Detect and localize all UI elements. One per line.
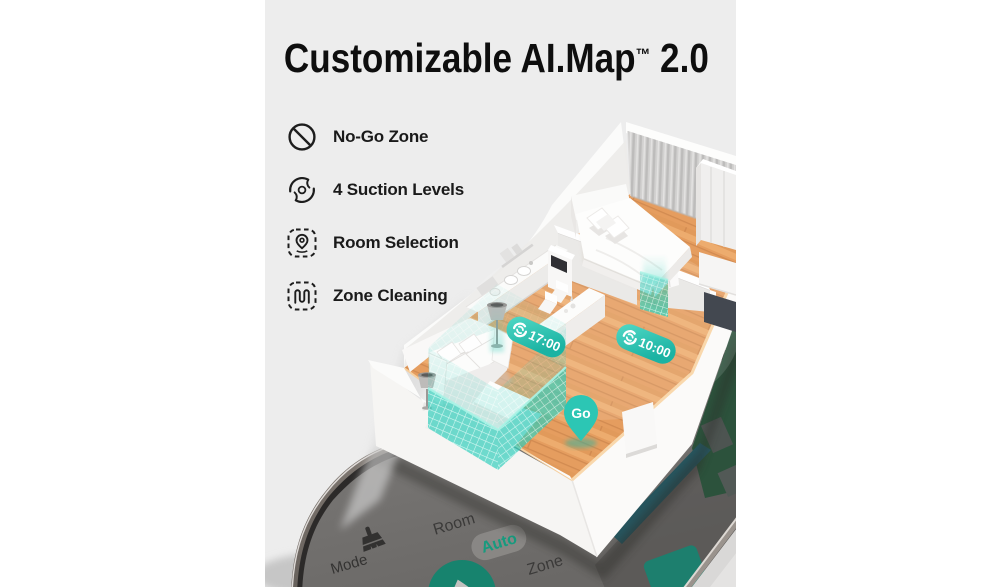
svg-text:Go: Go bbox=[571, 405, 590, 421]
